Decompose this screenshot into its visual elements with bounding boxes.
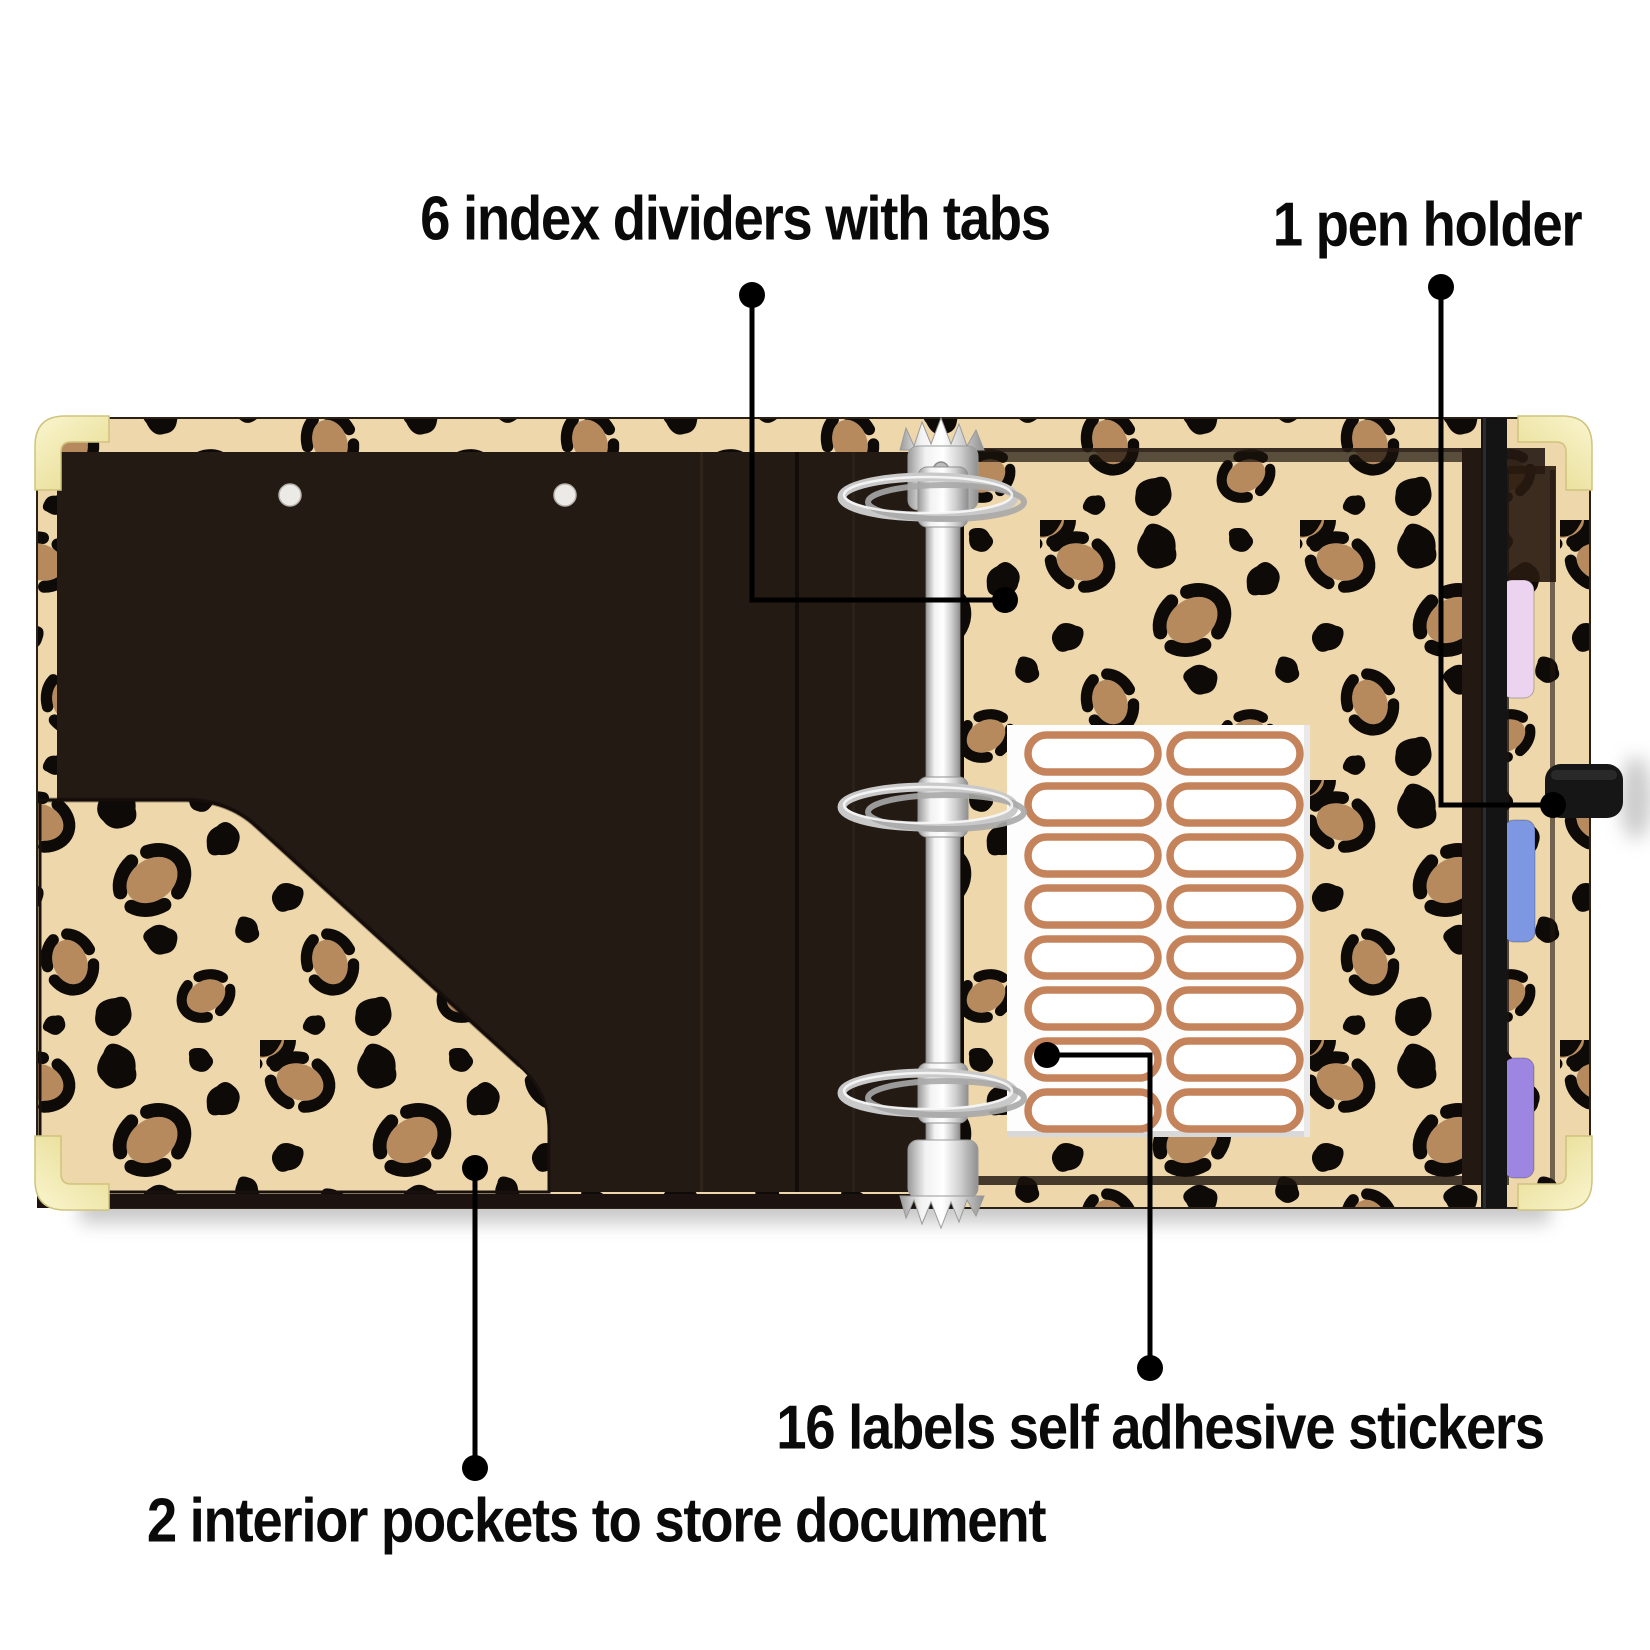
annotation-adhesive-labels: 16 labels self adhesive stickers [776,1393,1544,1464]
callout-dot [1137,1355,1163,1381]
label-sticker [1170,837,1300,874]
rivet [554,484,576,506]
callout-dot [462,1155,488,1181]
label-sticker [1170,1041,1300,1078]
divider-bottom-edge [962,1176,1462,1185]
index-tab-purple [1504,1058,1534,1178]
product-diagram: 6 index dividers with tabs 1 pen holder … [0,0,1650,1650]
callout-dot [739,282,765,308]
tab-slot-line [1550,470,1555,1185]
callout-dot [992,587,1018,613]
label-sticker [1028,786,1158,823]
annotation-pen-holder: 1 pen holder [1273,190,1582,261]
mechanism-bottom-clamp [908,1140,978,1198]
sheet-right-shade [1304,725,1310,1137]
callout-dot [1540,792,1566,818]
divider-top-edge [962,452,1462,462]
callout-dot [1428,274,1454,300]
pen-loop-shadow [1620,756,1650,840]
sticker-sheet [1007,725,1310,1137]
pen-loop-highlight [1551,770,1617,780]
tab-slot-shadow [1504,466,1556,582]
annotation-interior-pockets: 2 interior pockets to store document [147,1486,1045,1557]
label-sticker [1028,735,1158,772]
callout-dot [1034,1042,1060,1068]
callout-dot [462,1455,488,1481]
label-sticker [1170,990,1300,1027]
spine-fold-line [795,452,799,1192]
cover-fold-line [700,452,703,1192]
label-sticker [1170,1092,1300,1129]
divider-stack-right-shadow [1462,448,1482,1185]
elastic-band-highlight [1483,418,1486,1208]
label-sticker [1170,888,1300,925]
label-sticker [1170,786,1300,823]
annotation-index-dividers: 6 index dividers with tabs [420,184,1050,255]
label-sticker [1028,990,1158,1027]
label-sticker [1028,837,1158,874]
label-sticker [1028,888,1158,925]
label-sticker [1170,939,1300,976]
label-sticker [1028,939,1158,976]
rivet [279,484,301,506]
index-tab-blue [1504,820,1535,942]
label-sticker [1170,735,1300,772]
cover-bottom-edge [37,1194,965,1208]
label-sticker [1028,1092,1158,1129]
